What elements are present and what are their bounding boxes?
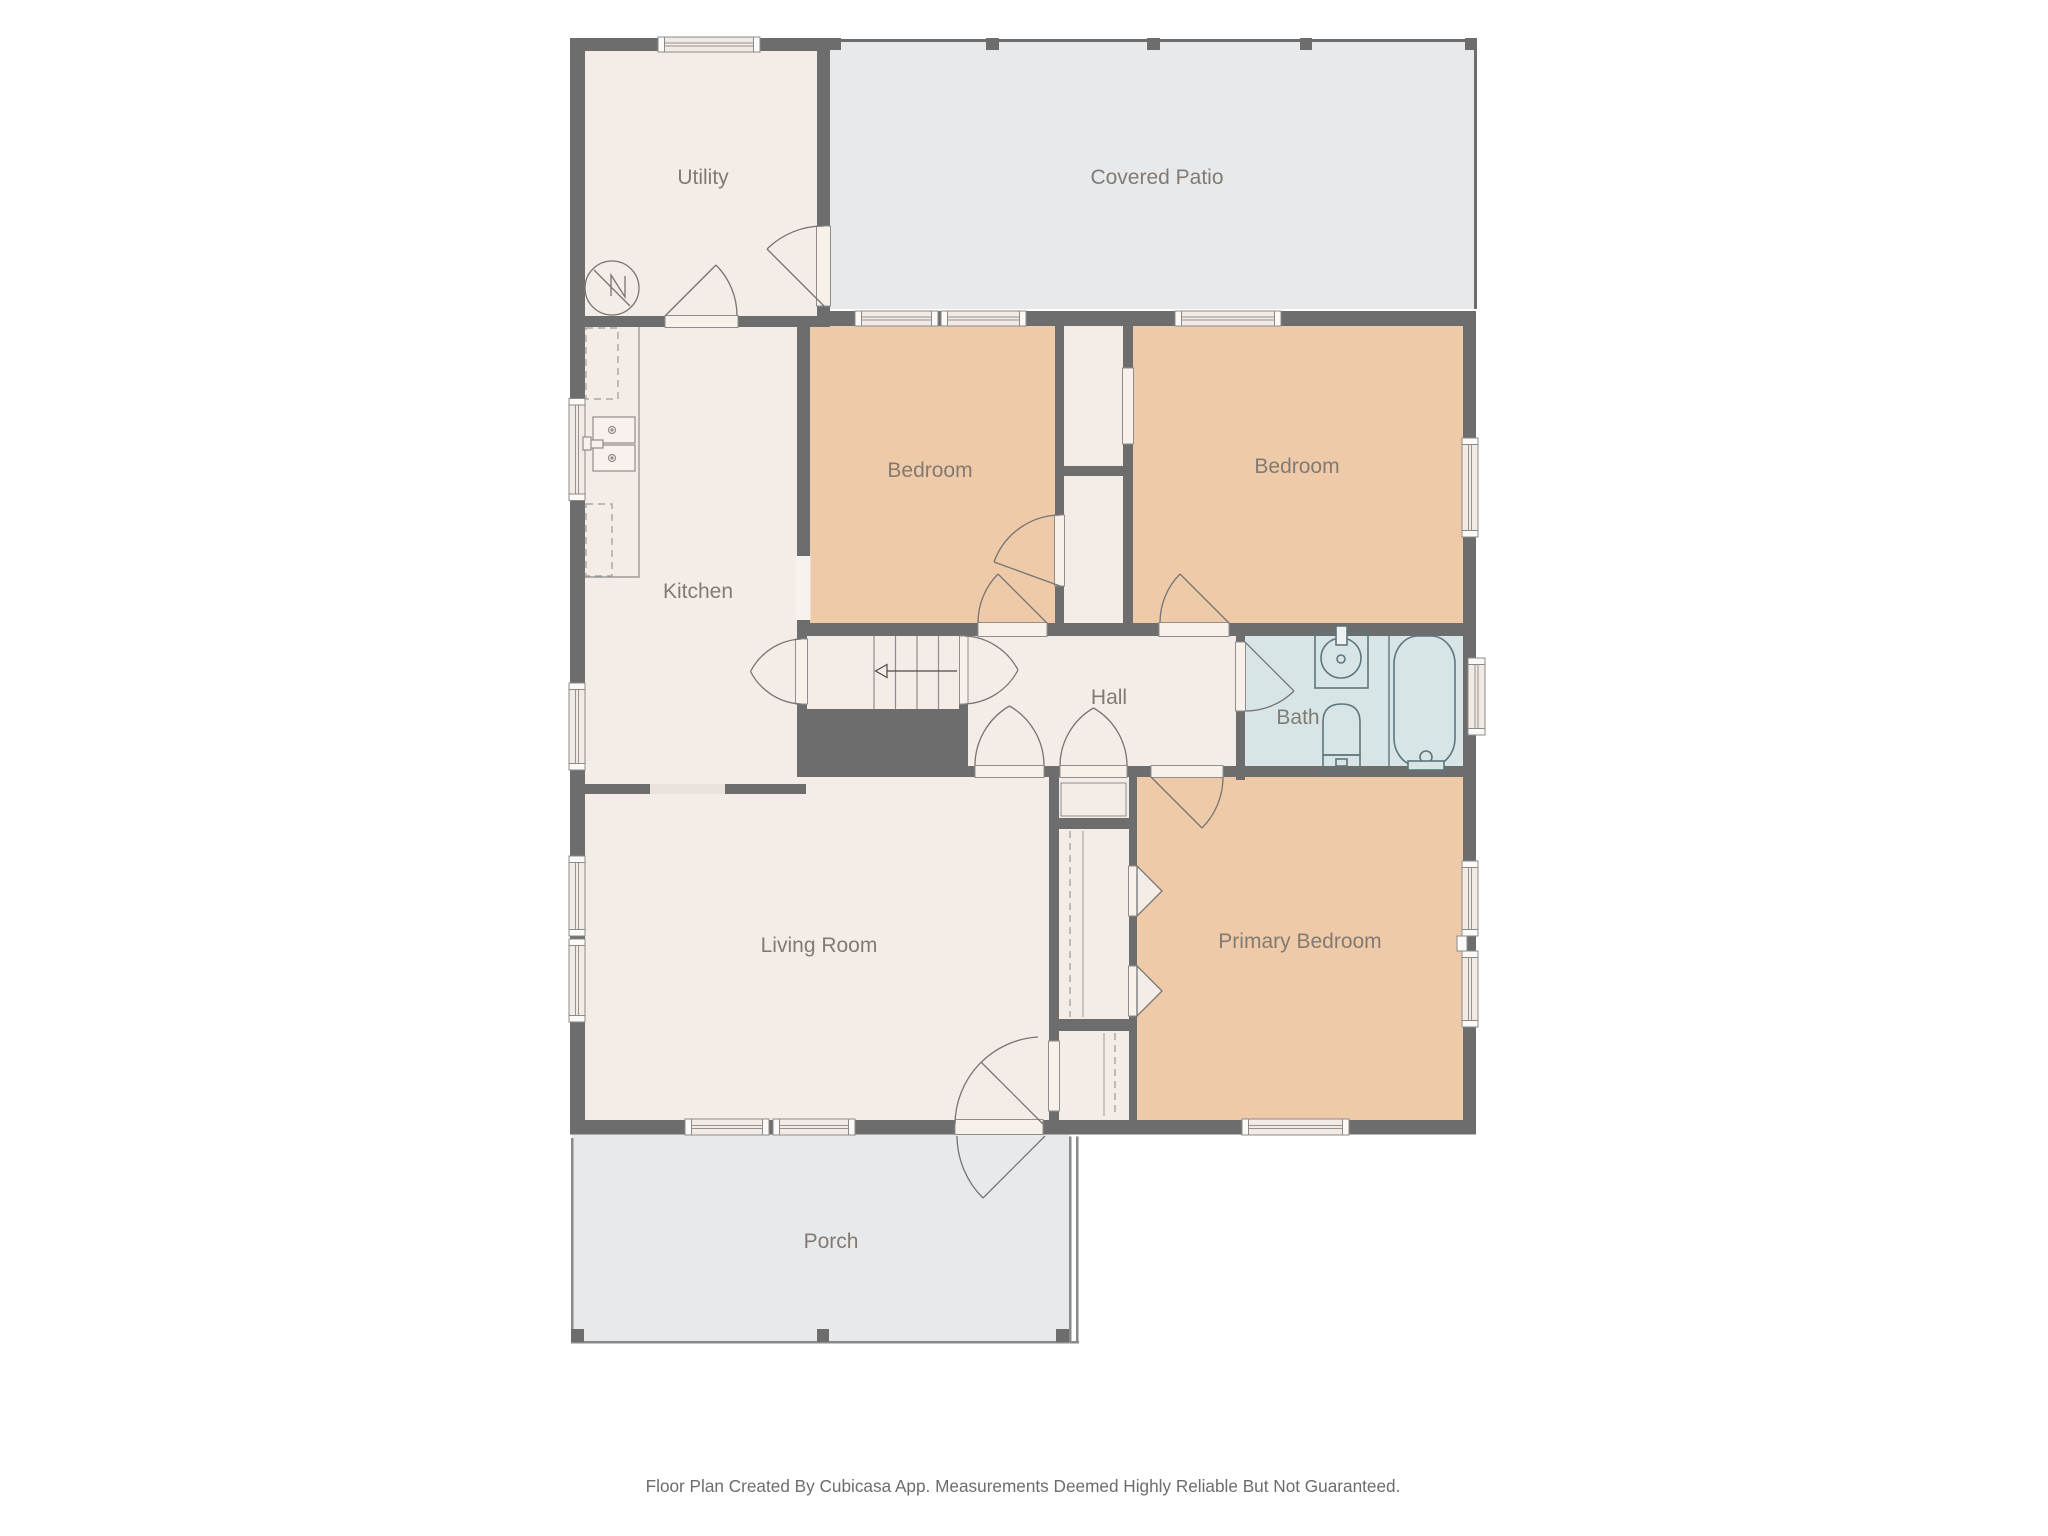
svg-text:Living Room: Living Room <box>761 934 878 957</box>
svg-text:Porch: Porch <box>804 1230 859 1253</box>
svg-text:Bedroom: Bedroom <box>1254 455 1339 478</box>
svg-text:Primary Bedroom: Primary Bedroom <box>1218 930 1381 953</box>
svg-text:Bath: Bath <box>1276 706 1319 729</box>
svg-text:Floor Plan Created By Cubicasa: Floor Plan Created By Cubicasa App. Meas… <box>646 1476 1401 1496</box>
svg-text:Kitchen: Kitchen <box>663 580 733 603</box>
svg-text:Covered Patio: Covered Patio <box>1090 166 1223 189</box>
svg-text:Hall: Hall <box>1091 686 1127 709</box>
svg-text:Bedroom: Bedroom <box>887 459 972 482</box>
svg-text:Utility: Utility <box>677 166 729 189</box>
